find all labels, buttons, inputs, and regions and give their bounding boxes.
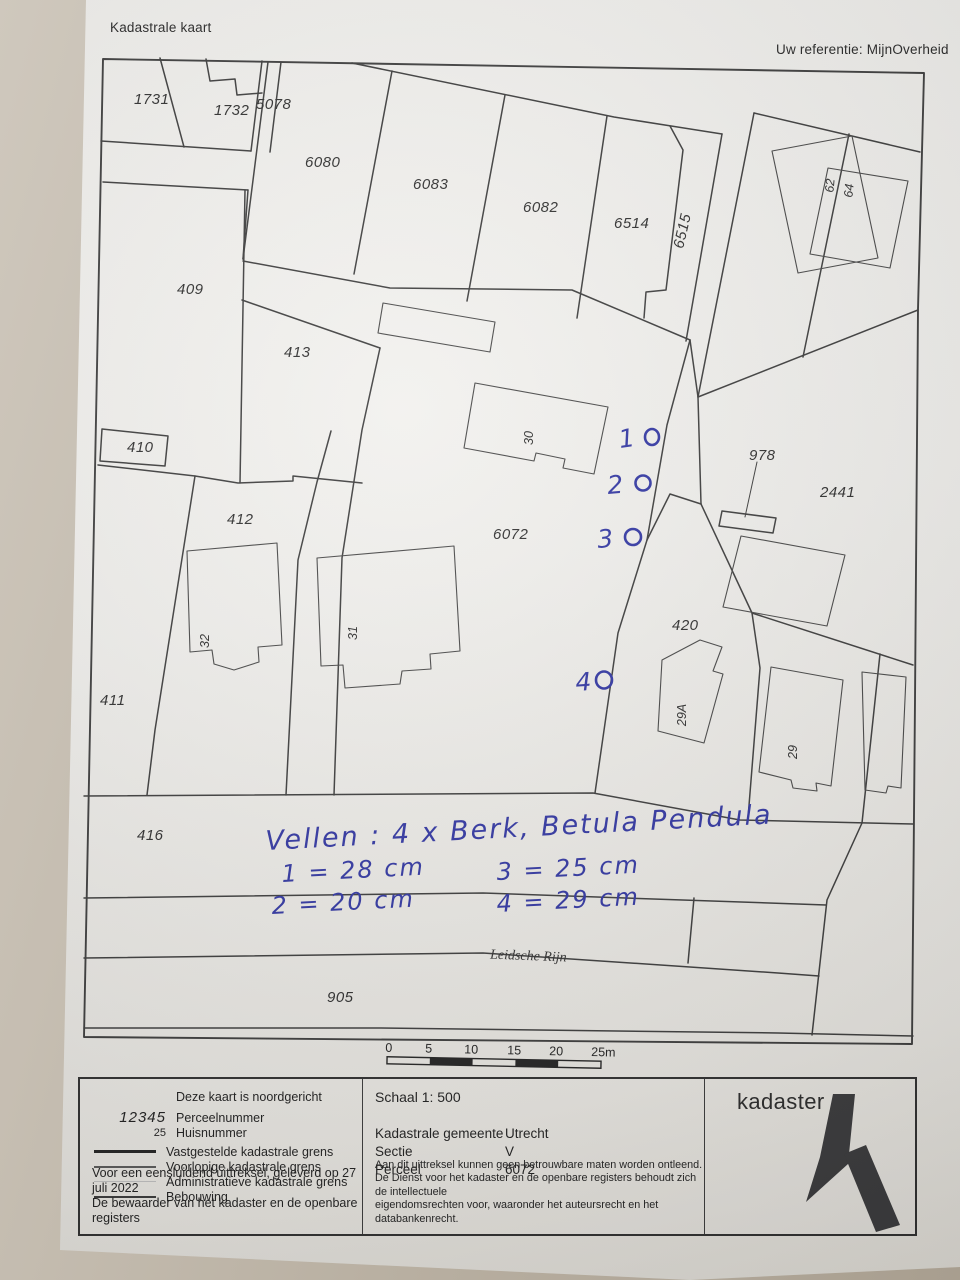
handwriting-measure-4: 4 = 29 cm (496, 883, 641, 918)
building-outlines (187, 136, 908, 793)
parcel-label: 411 (100, 692, 125, 709)
tree-marker-digit: 1 (617, 423, 637, 454)
parcel-label: 2441 (819, 484, 855, 501)
house-number: 31 (346, 626, 360, 640)
disclaimer-text: Aan dit uittreksel kunnen geen betrouwba… (375, 1159, 704, 1227)
disclaimer-line: eigendomsrechten voor, waaronder het aut… (375, 1199, 704, 1226)
tree-circle-2 (636, 476, 651, 491)
photo-of-cadastral-extract: Kadastrale kaart Uw referentie: MijnOver… (0, 0, 960, 1280)
handwriting-measure-1: 1 = 28 cm (281, 853, 426, 888)
legend-house-label: Huisnummer (176, 1126, 247, 1140)
parcel-label: 420 (672, 617, 699, 634)
handwriting-measure-2: 2 = 20 cm (271, 885, 416, 920)
house-number: 32 (198, 634, 212, 648)
scale-tick-label: 10 (464, 1042, 478, 1056)
house-number: 64 (841, 183, 856, 198)
parcel-label: 6515 (670, 212, 695, 250)
disclaimer-line: Aan dit uittreksel kunnen geen betrouwba… (375, 1159, 704, 1173)
building-29A (658, 640, 723, 743)
detail-value: Utrecht (505, 1125, 549, 1143)
waterway-label: Leidsche Rijn (489, 948, 567, 966)
house-number: 30 (522, 431, 536, 445)
tree-circles (596, 429, 659, 689)
parcel-label: 409 (177, 281, 204, 298)
tree-circle-1 (645, 429, 659, 445)
building-30 (464, 383, 608, 474)
parcel-label: 905 (327, 989, 354, 1006)
disclaimer-line: De Dienst voor het kadaster en de openba… (375, 1172, 704, 1199)
building-right-edge (862, 672, 906, 793)
scale-bar-frame (387, 1057, 601, 1068)
scale-bar: 0 5 10 15 20 25m (385, 1041, 616, 1069)
tree-marker-digit: 4 (574, 667, 592, 697)
brand-column: kadaster (705, 1079, 915, 1234)
footer-box: Deze kaart is noordgericht 12345 Perceel… (78, 1077, 917, 1236)
parcel-label: 416 (137, 827, 164, 844)
legend-parcel-label: Perceelnummer (176, 1111, 264, 1125)
kadaster-logo-icon (705, 1079, 915, 1232)
parcel-label: 1732 (214, 102, 250, 119)
parcel-label: 1731 (134, 91, 169, 108)
house-number: 62 (822, 178, 837, 193)
parcel-label: 6083 (413, 176, 449, 193)
issued-line-2: De bewaarder van het kadaster en de open… (92, 1196, 362, 1226)
scale-tick-label: 25m (591, 1045, 616, 1060)
scale-tick-label: 15 (507, 1043, 521, 1057)
house-number: 29 (786, 745, 800, 760)
tree-marker-digit: 2 (606, 470, 624, 500)
parcel-label: 6082 (523, 199, 559, 216)
parcel-label: 5078 (256, 96, 292, 113)
parcel-label: 6514 (614, 215, 649, 232)
parcel-label: 412 (227, 511, 254, 528)
building-978 (723, 536, 845, 626)
north-note: Deze kaart is noordgericht (176, 1090, 322, 1104)
legend-parcel-sample: 12345 (80, 1109, 176, 1126)
house-number: 29A (675, 704, 689, 727)
legend-line-vastgesteld (94, 1150, 156, 1153)
scale-tick-label: 0 (385, 1041, 392, 1055)
tree-circle-4 (596, 672, 612, 689)
issued-note: Voor een eensluidend uittreksel, gelever… (92, 1166, 362, 1226)
detail-label: Kadastrale gemeente (375, 1125, 505, 1143)
tree-circle-3 (625, 529, 641, 545)
legend-house-sample: 25 (80, 1127, 176, 1139)
legend-column: Deze kaart is noordgericht 12345 Perceel… (80, 1079, 363, 1234)
handwriting-measure-3: 3 = 25 cm (496, 851, 641, 886)
scale-tick-label: 5 (425, 1042, 432, 1056)
house-number-labels: 30 31 32 29A 29 62 64 (198, 178, 857, 760)
scale-text: Schaal 1: 500 (375, 1089, 704, 1105)
legend-line-label: Vastgestelde kadastrale grens (166, 1145, 333, 1159)
building-29 (759, 667, 843, 791)
tree-marker-digit: 3 (596, 524, 614, 554)
parcel-label: 6080 (305, 154, 341, 171)
building-32 (187, 543, 282, 670)
handwriting-title: Vellen : 4 x Berk, Betula Pendula (265, 799, 774, 857)
parcel-label: 410 (127, 439, 154, 456)
parcel-label: 413 (284, 344, 311, 361)
parcel-label: 6072 (493, 526, 529, 543)
scale-tick-label: 20 (549, 1044, 563, 1058)
outbuilding (378, 303, 495, 352)
details-column: Schaal 1: 500 Kadastrale gemeente Utrech… (363, 1079, 705, 1234)
parcel-label: 978 (749, 447, 776, 464)
issued-line-1: Voor een eensluidend uittreksel, gelever… (92, 1166, 362, 1196)
handwritten-annotations: 1 2 3 4 Vellen : 4 x Berk, Betula Pendul… (265, 423, 774, 920)
